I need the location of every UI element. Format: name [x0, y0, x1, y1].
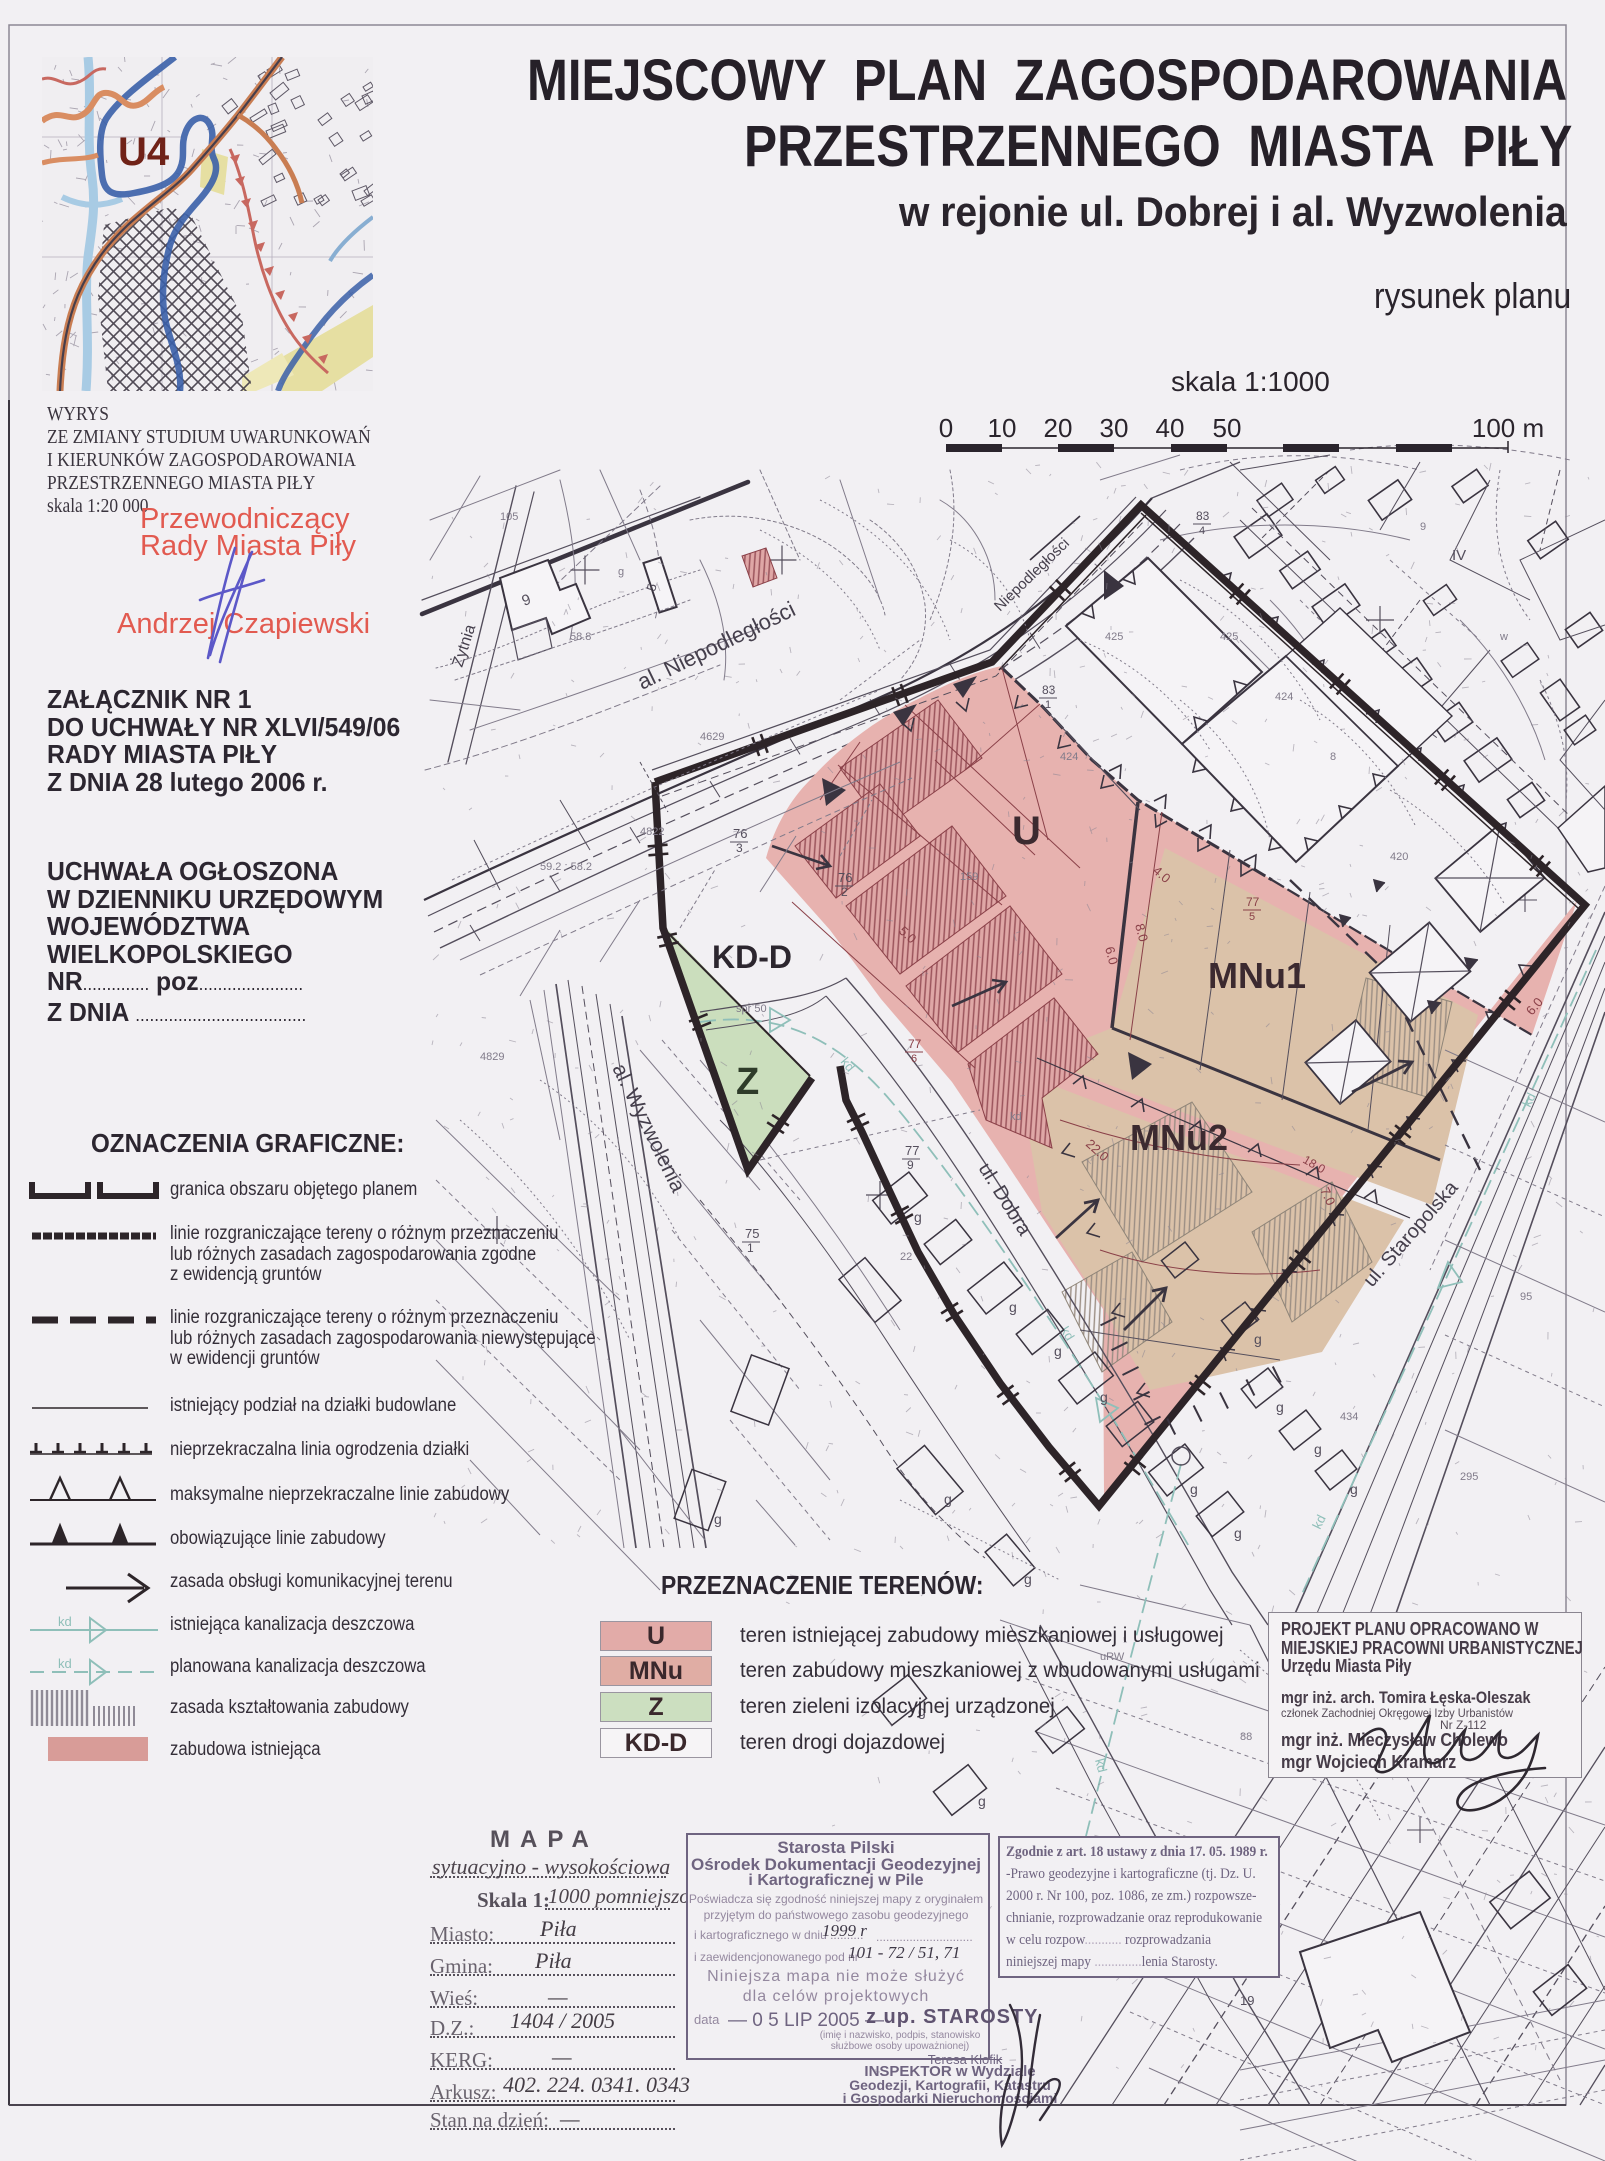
svg-text:77: 77: [905, 1143, 919, 1158]
svg-text:19: 19: [1240, 1993, 1254, 2008]
svg-text:g: g: [1024, 1571, 1032, 1587]
svg-text:425: 425: [1220, 631, 1238, 643]
svg-text:g: g: [714, 1511, 722, 1527]
svg-text:77: 77: [908, 1037, 922, 1051]
svg-text:4: 4: [1199, 525, 1205, 537]
svg-text:MNu2: MNu2: [1130, 1117, 1228, 1158]
svg-text:kd: kd: [1519, 1090, 1539, 1109]
svg-text:kd: kd: [58, 1656, 72, 1671]
svg-text:IV: IV: [1452, 547, 1466, 564]
svg-text:g: g: [1009, 1299, 1017, 1315]
svg-text:Niepodległości: Niepodległości: [991, 535, 1073, 615]
svg-text:Z: Z: [736, 1061, 759, 1103]
svg-text:g: g: [1254, 1331, 1262, 1347]
svg-text:434: 434: [1340, 1411, 1358, 1423]
svg-text:88: 88: [1240, 1731, 1252, 1743]
svg-text:al. Wyzwolenia: al. Wyzwolenia: [608, 1060, 690, 1196]
svg-text:w: w: [1499, 631, 1508, 643]
svg-text:424: 424: [1060, 751, 1078, 763]
svg-text:4629: 4629: [700, 731, 724, 743]
svg-text:75: 75: [745, 1226, 759, 1241]
svg-text:4822: 4822: [640, 826, 664, 838]
svg-text:Żytnia: Żytnia: [448, 622, 480, 669]
svg-text:U4: U4: [118, 130, 170, 174]
svg-text:3: 3: [736, 841, 743, 855]
svg-text:95: 95: [1520, 1291, 1532, 1303]
svg-text:100 m: 100 m: [1472, 415, 1544, 443]
svg-text:8: 8: [1330, 751, 1336, 763]
svg-text:40: 40: [1156, 415, 1185, 443]
svg-text:1: 1: [747, 1241, 754, 1255]
svg-text:kd: kd: [1010, 1111, 1022, 1123]
svg-text:kd: kd: [58, 1614, 72, 1629]
svg-text:KD-D: KD-D: [712, 939, 792, 975]
svg-text:22: 22: [900, 1251, 912, 1263]
svg-text:kd: kd: [1309, 1512, 1329, 1531]
svg-text:77: 77: [1246, 895, 1260, 909]
svg-text:9: 9: [907, 1158, 914, 1172]
svg-text:425: 425: [1105, 631, 1123, 643]
svg-text:9: 9: [1420, 521, 1426, 533]
svg-text:4829: 4829: [480, 1051, 504, 1063]
svg-text:g: g: [978, 1793, 986, 1809]
svg-text:76: 76: [838, 870, 852, 885]
svg-text:g: g: [1100, 1389, 1108, 1405]
svg-text:2: 2: [841, 885, 848, 899]
svg-text:420: 420: [1390, 851, 1408, 863]
svg-text:g: g: [1234, 1525, 1242, 1541]
svg-text:424: 424: [1275, 691, 1293, 703]
svg-text:58.8: 58.8: [570, 631, 591, 643]
svg-text:105: 105: [500, 511, 518, 523]
svg-text:50: 50: [1213, 415, 1242, 443]
svg-text:g: g: [944, 1491, 952, 1507]
svg-text:g: g: [1054, 1343, 1062, 1359]
svg-text:g: g: [1190, 1481, 1198, 1497]
svg-text:spr 50: spr 50: [736, 1003, 767, 1015]
svg-text:83: 83: [1196, 509, 1210, 523]
svg-text:83: 83: [1042, 683, 1056, 697]
svg-text:g: g: [1276, 1399, 1284, 1415]
svg-text:76: 76: [733, 826, 747, 841]
svg-text:g: g: [618, 566, 624, 578]
svg-text:6: 6: [911, 1053, 917, 1065]
svg-text:5: 5: [1249, 911, 1255, 923]
svg-text:0: 0: [939, 415, 953, 443]
svg-text:1: 1: [1045, 699, 1051, 711]
svg-text:U: U: [1012, 809, 1041, 853]
svg-text:20: 20: [1044, 415, 1073, 443]
svg-text:295: 295: [1460, 1471, 1478, 1483]
svg-text:30: 30: [1100, 415, 1129, 443]
svg-text:10: 10: [988, 415, 1017, 443]
svg-text:g: g: [914, 1209, 922, 1225]
svg-text:MNu1: MNu1: [1208, 955, 1306, 996]
svg-text:g: g: [1314, 1441, 1322, 1457]
svg-text:59.2 : 58.2: 59.2 : 58.2: [540, 861, 592, 873]
svg-text:g: g: [1350, 1481, 1358, 1497]
svg-text:159: 159: [960, 871, 978, 883]
svg-text:kd: kd: [1092, 1757, 1110, 1774]
